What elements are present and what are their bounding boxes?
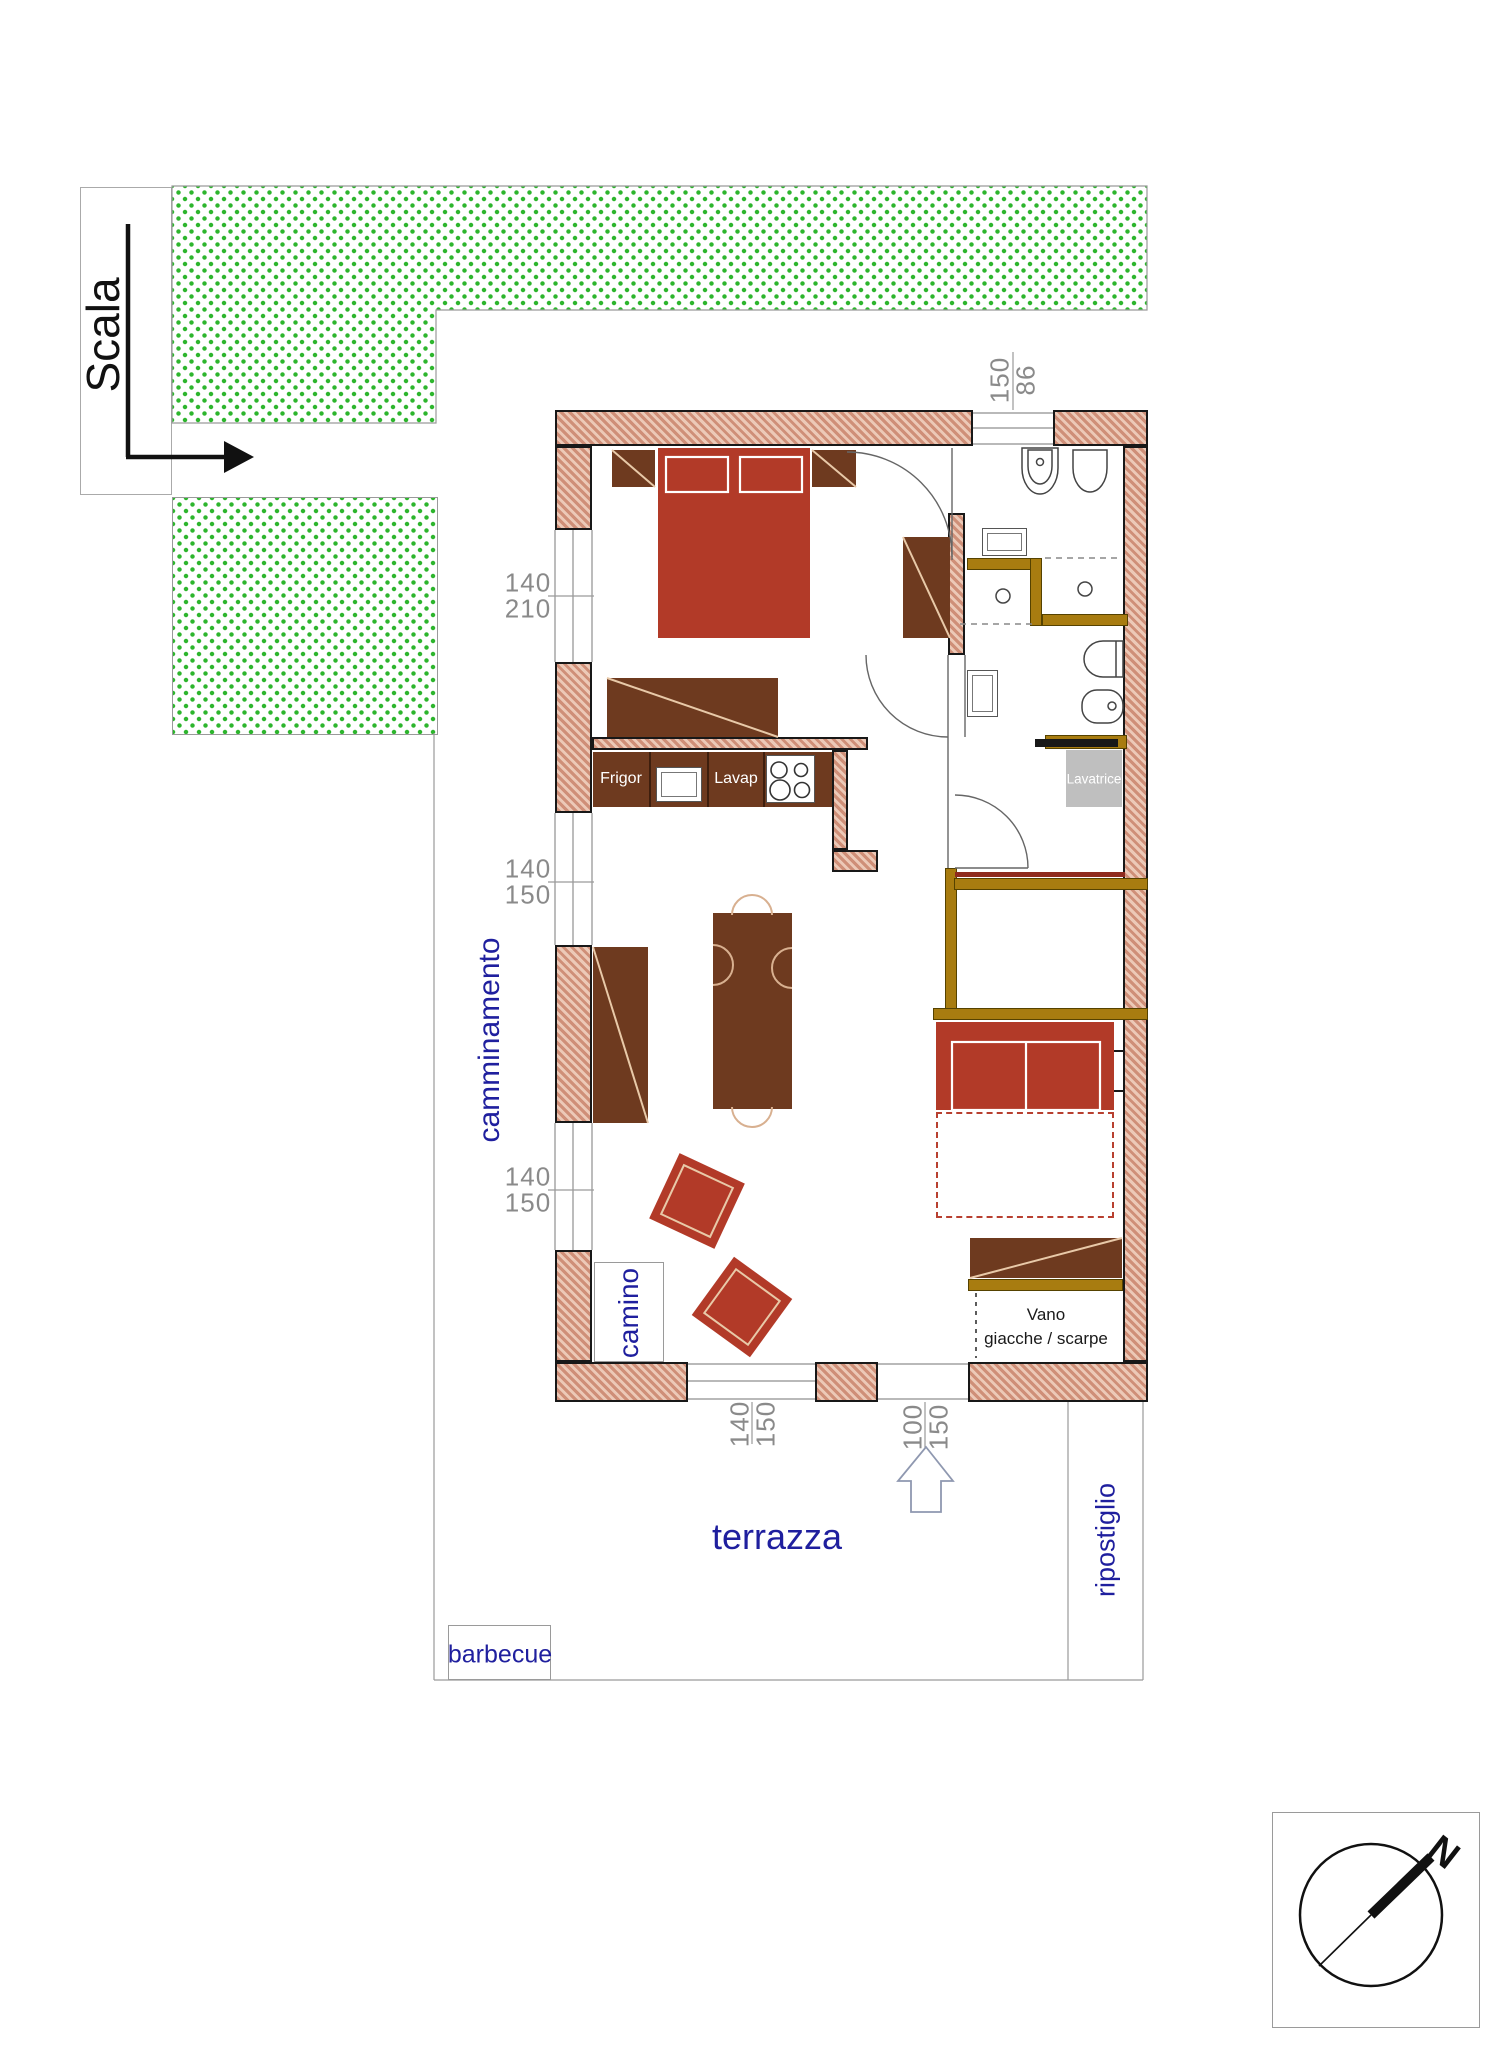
coat-compartment-line2: giacche / scarpe (984, 1327, 1108, 1351)
entrance-arrow (898, 1447, 953, 1512)
walkway-label: camminamento (473, 937, 507, 1142)
toilet-icon (1022, 448, 1058, 494)
window-lines (555, 413, 1053, 1399)
dining-chairs (713, 895, 792, 1127)
bidet2-icon (1082, 690, 1123, 723)
floor-plan: Scala camminamento camino terrazza ripos… (0, 0, 1487, 2048)
fridge-label: Frigor (600, 770, 642, 788)
shower-drain-1 (1078, 582, 1092, 596)
dim-terrace-window-h: 150 (751, 1401, 782, 1447)
furniture-diagonals (593, 450, 1122, 1278)
stove-burners (770, 762, 810, 800)
shower-drain-2 (996, 589, 1010, 603)
plan-linework (0, 0, 1487, 2048)
storage-label: ripostiglio (1091, 1483, 1122, 1597)
toilet2-icon (1084, 641, 1123, 677)
fireplace-label: camino (613, 1268, 645, 1358)
dim-living-upper-h: 150 (505, 880, 551, 911)
stair-label: Scala (76, 277, 130, 392)
stair-direction-arrow (126, 224, 254, 473)
dishwasher-label: Lavap (714, 770, 758, 788)
terrace-label: terrazza (712, 1516, 842, 1558)
coat-compartment-label: Vano giacche / scarpe (984, 1303, 1108, 1351)
bed-pillows (666, 457, 802, 492)
dim-bath-window-w: 86 (1011, 365, 1042, 396)
door-swings (847, 448, 1028, 868)
dim-living-lower-h: 150 (505, 1188, 551, 1219)
dim-entry-door-h: 150 (924, 1404, 955, 1450)
sofa-outline (952, 1042, 1100, 1110)
bidet-icon (1073, 450, 1107, 492)
compass-icon (1300, 1844, 1442, 1986)
washing-machine-label: Lavatrice (1067, 772, 1122, 787)
dim-bedroom-window-h: 210 (505, 594, 551, 625)
shower-area (960, 558, 1120, 624)
coat-compartment-line1: Vano (984, 1303, 1108, 1327)
barbecue-label: barbecue (448, 1641, 552, 1670)
